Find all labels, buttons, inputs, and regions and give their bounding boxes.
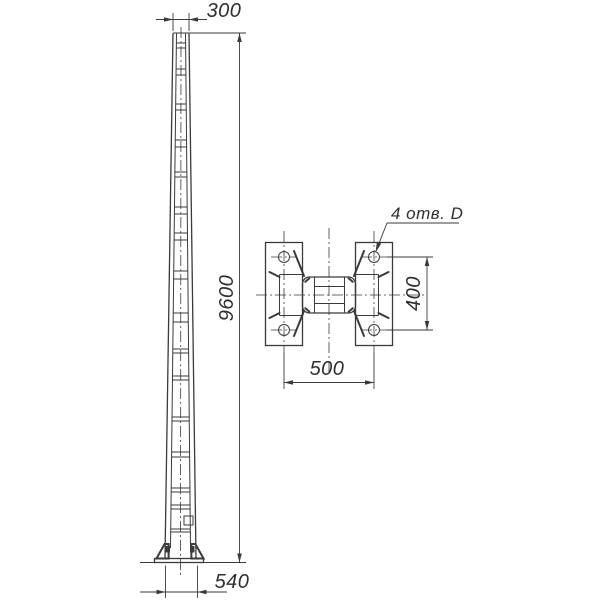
- plan-centerlines: [256, 228, 425, 375]
- drawing-sheet: 300 9600 540: [0, 0, 600, 600]
- holes-callout-label: 4 отв. D: [391, 204, 463, 223]
- dimension-hole-spacing-horizontal: 500: [284, 352, 374, 389]
- dim-height-label: 9600: [216, 275, 238, 322]
- dimension-base-width: 540: [140, 566, 249, 599]
- pole-handhole: [184, 516, 193, 525]
- base-plan-view: 400 500 4 отв. D: [256, 204, 463, 389]
- dim-base-width-label: 540: [215, 571, 250, 593]
- base-gusset-edge-left: [166, 546, 171, 553]
- pole-elevation-view: 300 9600 540: [140, 0, 249, 598]
- drawing-canvas: 300 9600 540: [0, 0, 600, 600]
- dim-top-width-label: 300: [207, 0, 242, 22]
- dimension-top-width: 300: [156, 0, 241, 31]
- pole-base-plate: [155, 559, 204, 563]
- pole-shaft-outer-left: [165, 33, 173, 559]
- dimension-height: 9600: [216, 33, 242, 563]
- dimension-hole-spacing-vertical: 400: [387, 257, 433, 330]
- holes-callout: 4 отв. D: [376, 204, 464, 253]
- base-gusset-edge-right: [190, 546, 195, 553]
- dim-hole-spacing-vertical-label: 400: [403, 276, 425, 311]
- dim-hole-spacing-horizontal-label: 500: [310, 358, 345, 380]
